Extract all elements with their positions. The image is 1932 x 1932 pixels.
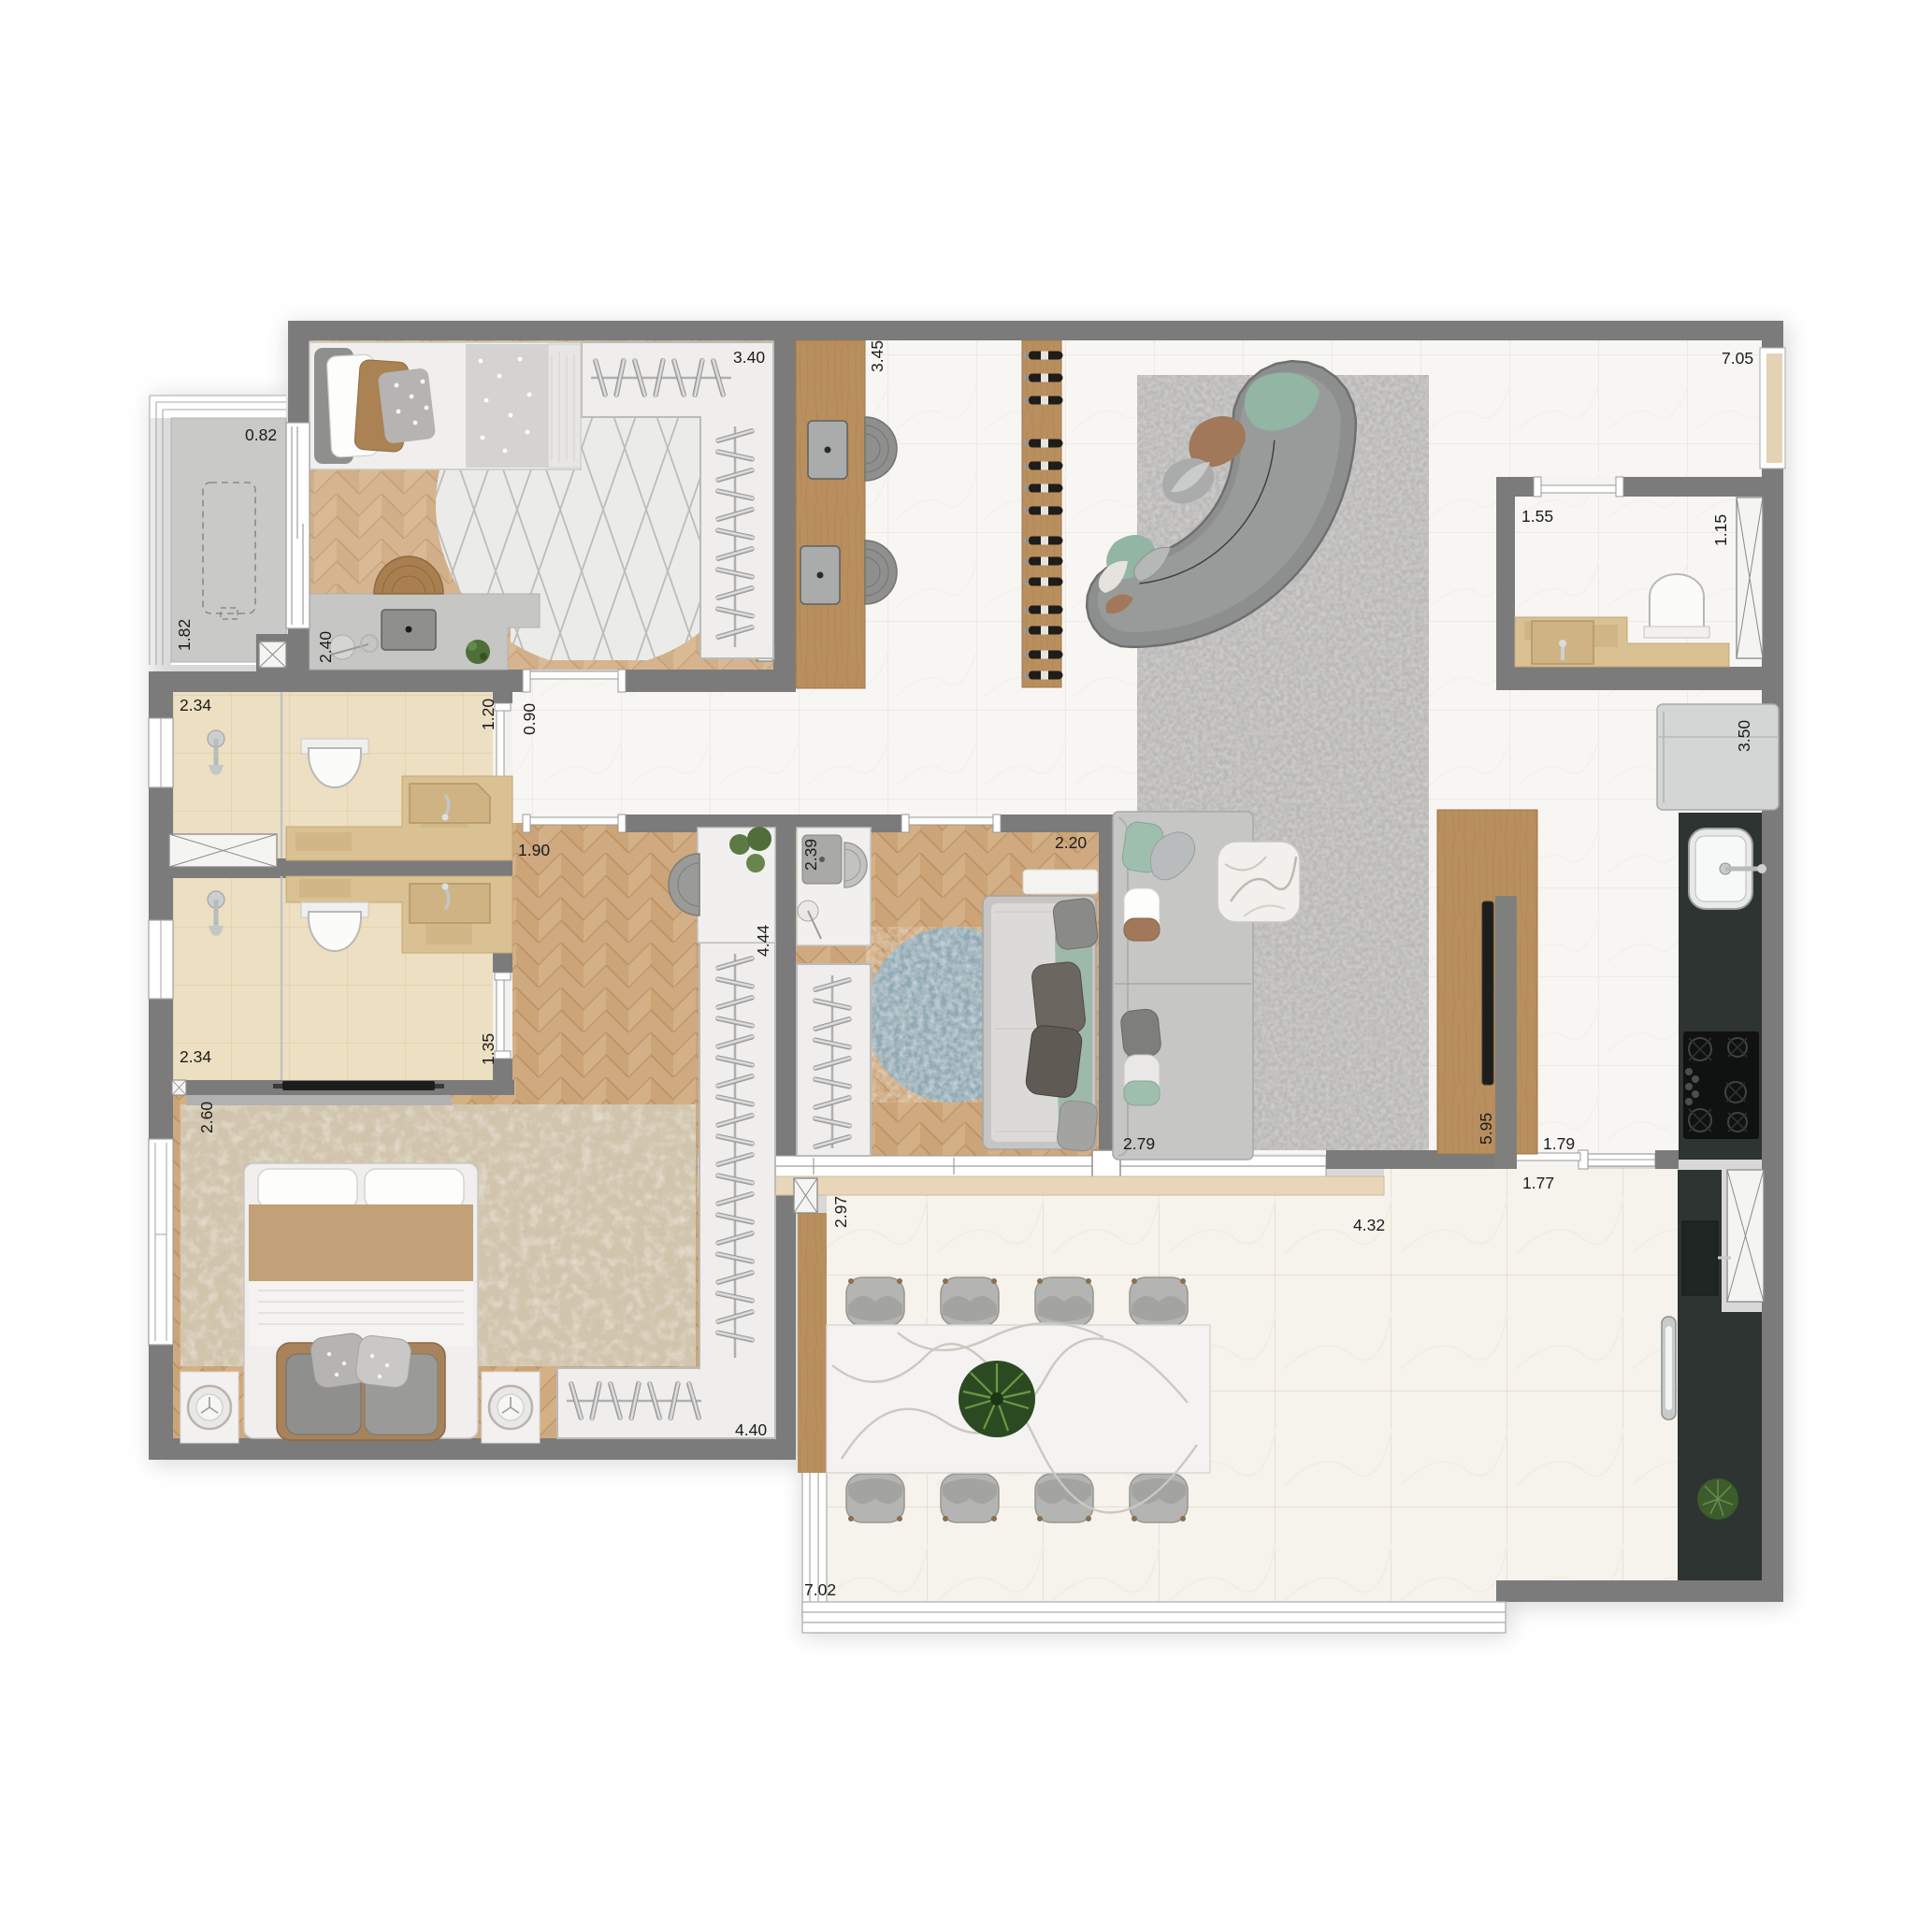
svg-text:3.40: 3.40 <box>733 348 765 367</box>
svg-text:1.82: 1.82 <box>175 619 194 651</box>
svg-text:4.44: 4.44 <box>754 925 772 957</box>
svg-text:1.20: 1.20 <box>479 699 497 730</box>
svg-text:1.15: 1.15 <box>1711 514 1730 546</box>
svg-text:2.39: 2.39 <box>801 839 820 871</box>
svg-text:1.90: 1.90 <box>518 841 550 859</box>
svg-text:2.34: 2.34 <box>180 696 211 714</box>
svg-text:2.79: 2.79 <box>1123 1134 1155 1153</box>
svg-text:2.40: 2.40 <box>316 631 335 663</box>
svg-text:4.32: 4.32 <box>1353 1216 1385 1234</box>
svg-text:5.95: 5.95 <box>1477 1113 1495 1145</box>
svg-text:3.45: 3.45 <box>868 340 887 372</box>
svg-text:1.77: 1.77 <box>1522 1174 1554 1192</box>
svg-text:0.90: 0.90 <box>520 703 539 735</box>
svg-text:3.50: 3.50 <box>1735 720 1753 752</box>
svg-text:1.35: 1.35 <box>479 1033 497 1065</box>
svg-text:7.02: 7.02 <box>804 1580 836 1599</box>
svg-text:1.55: 1.55 <box>1521 507 1553 526</box>
svg-text:4.40: 4.40 <box>735 1420 767 1439</box>
svg-text:2.20: 2.20 <box>1055 833 1087 852</box>
svg-text:2.97: 2.97 <box>831 1196 850 1228</box>
svg-text:2.34: 2.34 <box>180 1047 211 1066</box>
svg-text:7.05: 7.05 <box>1722 349 1753 368</box>
svg-text:1.79: 1.79 <box>1543 1134 1575 1153</box>
svg-text:0.82: 0.82 <box>245 425 277 444</box>
svg-text:2.60: 2.60 <box>197 1102 216 1133</box>
